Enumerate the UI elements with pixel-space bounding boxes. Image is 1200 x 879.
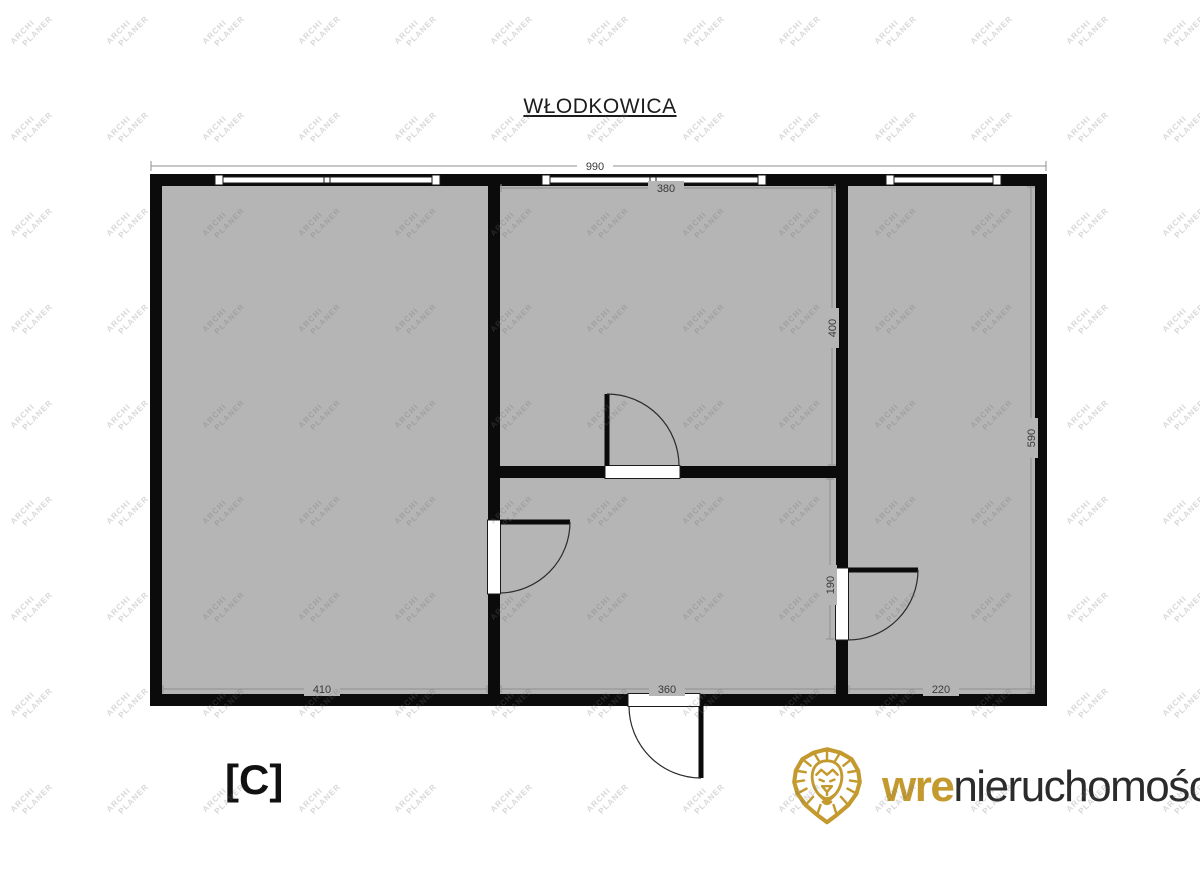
floor-plan-page: WŁODKOWICA bbox=[0, 0, 1200, 879]
wall-interior-a-lower bbox=[488, 594, 500, 694]
window-symbol-right bbox=[886, 175, 1001, 185]
wall-interior-b-upper bbox=[836, 186, 848, 568]
svg-text:410: 410 bbox=[313, 684, 331, 696]
wall-interior-c-left bbox=[494, 466, 605, 478]
svg-text:360: 360 bbox=[658, 684, 676, 696]
agency-logo: wrenieruchomości bbox=[786, 744, 1200, 830]
agency-name: wrenieruchomości bbox=[882, 762, 1200, 812]
rooms bbox=[162, 186, 1035, 694]
brand-prefix: wre bbox=[882, 762, 953, 811]
room-middle-bottom bbox=[500, 478, 836, 694]
wall-bottom-right bbox=[700, 694, 1047, 706]
brand-suffix: nieruchomości bbox=[953, 762, 1200, 811]
window-symbol-left bbox=[215, 175, 440, 185]
room-left bbox=[162, 186, 488, 694]
wall-bottom-left bbox=[150, 694, 628, 706]
svg-text:190: 190 bbox=[825, 576, 837, 594]
svg-text:380: 380 bbox=[657, 183, 675, 195]
svg-text:990: 990 bbox=[586, 161, 604, 173]
room-middle-top bbox=[500, 186, 836, 466]
room-right bbox=[848, 186, 1035, 694]
dimension-overall-width: 990 bbox=[151, 159, 1046, 173]
svg-text:220: 220 bbox=[932, 684, 950, 696]
svg-text:400: 400 bbox=[827, 319, 839, 337]
unit-label: [C] bbox=[225, 756, 283, 804]
wall-left bbox=[150, 174, 162, 706]
lion-icon bbox=[786, 744, 868, 830]
wall-interior-b-lower bbox=[836, 640, 848, 694]
door-symbol-entrance bbox=[628, 694, 701, 779]
svg-text:590: 590 bbox=[1026, 429, 1038, 447]
wall-interior-c-right bbox=[680, 466, 842, 478]
